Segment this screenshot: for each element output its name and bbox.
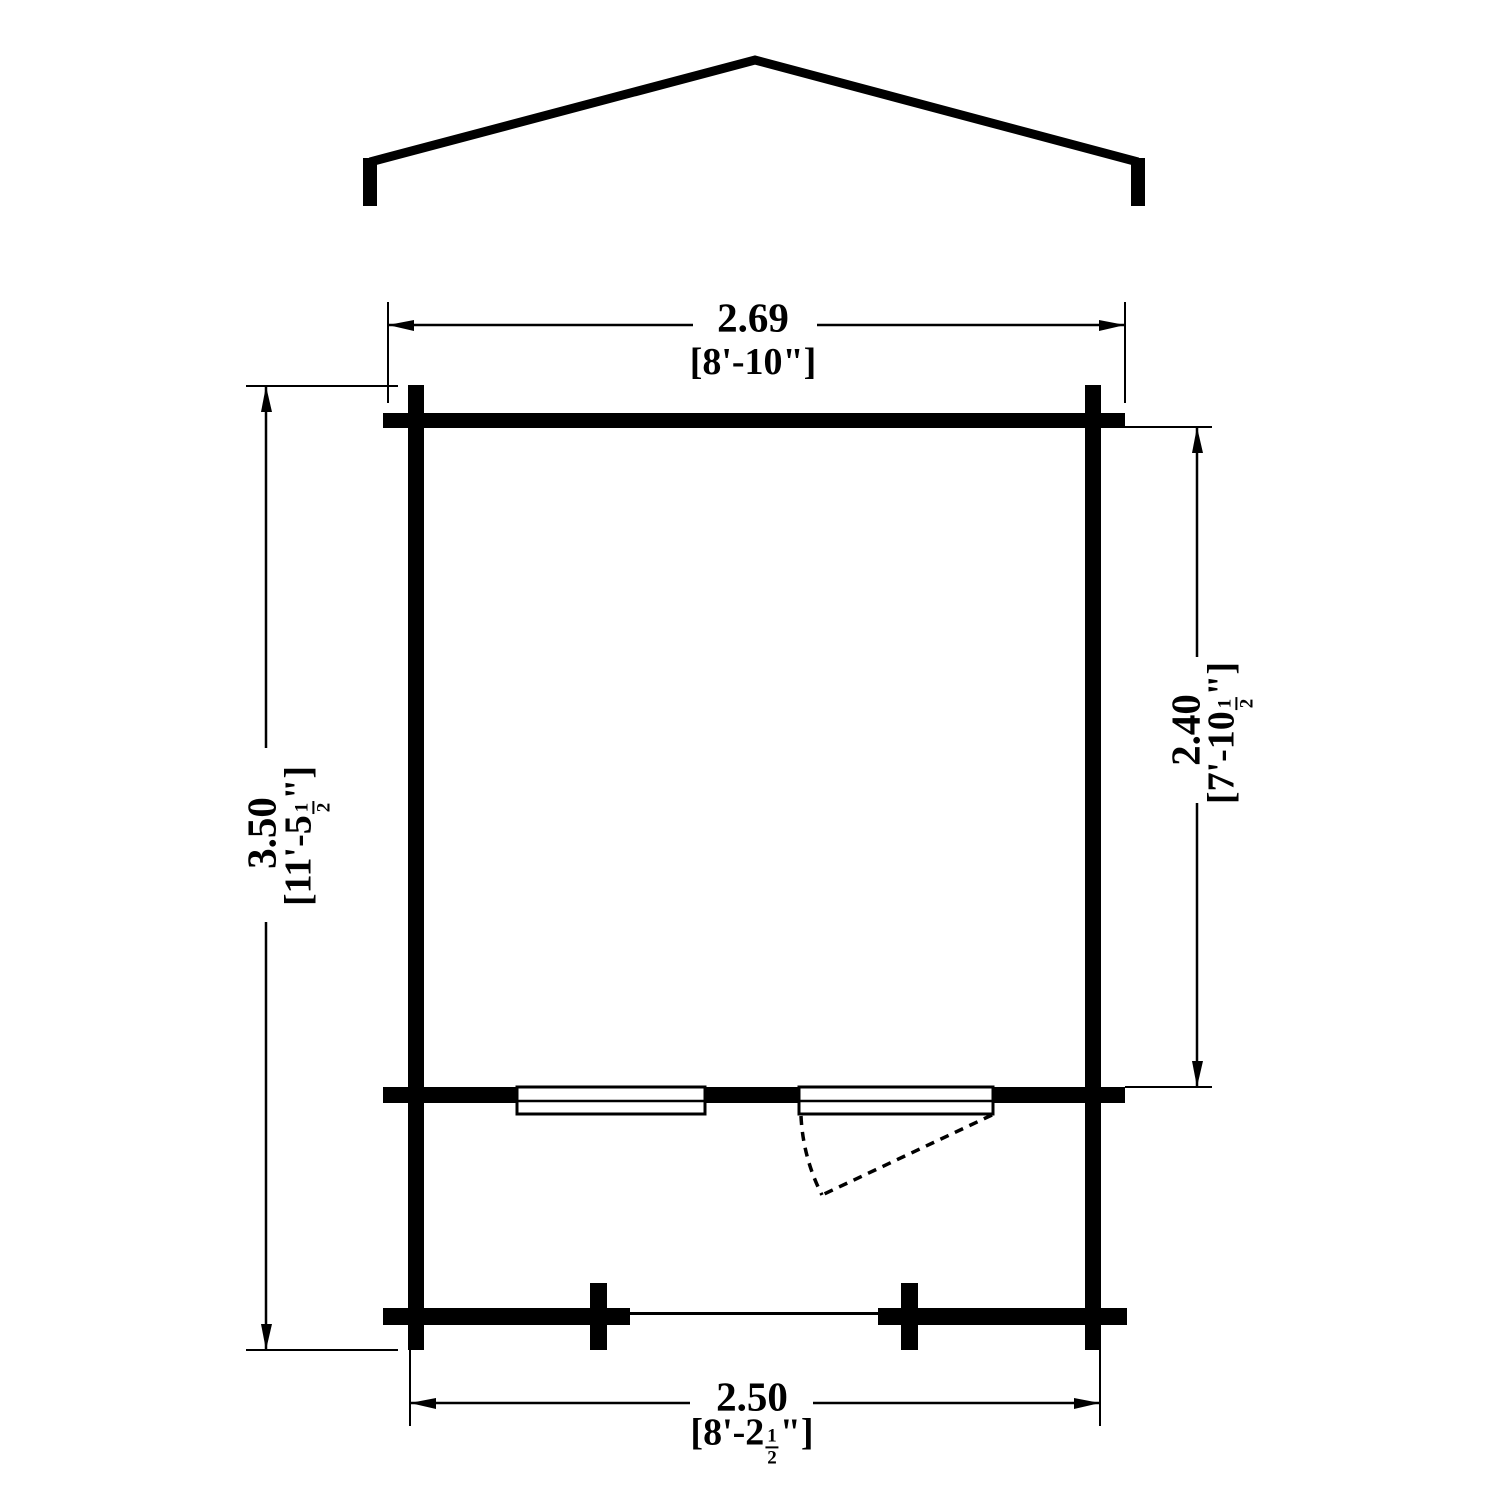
porch <box>383 1283 1127 1350</box>
dim-right-imperial-post: "] <box>1200 662 1242 696</box>
arrow-bottom-left <box>410 1398 436 1409</box>
arrow-left-top <box>261 386 272 412</box>
arrow-bottom-right <box>1074 1398 1100 1409</box>
dim-bottom-imperial: [8'-212"] <box>684 1413 819 1468</box>
dim-bottom-fraction: 12 <box>765 1427 779 1469</box>
dim-right-imperial: [7'-1012"] <box>1202 656 1257 810</box>
arrow-right-top <box>1192 427 1203 453</box>
walls <box>383 385 1125 1350</box>
wall-left <box>408 385 424 1350</box>
wall-front <box>383 1087 1125 1103</box>
gable-roof-profile <box>363 60 1145 206</box>
door-swing-arc <box>801 1116 822 1195</box>
dim-left-metric: 3.50 <box>242 791 283 875</box>
dim-bottom-imperial-post: "] <box>780 1411 814 1453</box>
dim-left-imperial-pre: [11'-5 <box>277 815 319 906</box>
dim-right-fraction: 12 <box>1216 697 1258 711</box>
dim-right-imperial-pre: [7'-10 <box>1200 711 1242 804</box>
dimension-arrows <box>261 320 1203 1409</box>
arrow-left-bottom <box>261 1324 272 1350</box>
porch-post-right <box>901 1283 918 1350</box>
roof-eave-end-left <box>363 158 377 206</box>
wall-right <box>1085 385 1101 1350</box>
floor-plan-canvas: 2.69 [8'-10"] 3.50 [11'-512"] 2.40 [7'-1… <box>0 0 1500 1500</box>
double-window <box>517 1087 705 1114</box>
roof-eave-end-right <box>1131 158 1145 206</box>
arrow-right-bottom <box>1192 1061 1203 1087</box>
dimension-lines <box>266 325 1197 1403</box>
dim-left-fraction: 12 <box>293 801 335 815</box>
dim-left-imperial: [11'-512"] <box>279 760 334 912</box>
porch-post-left <box>590 1283 607 1350</box>
arrow-top-right <box>1099 320 1125 331</box>
dim-top-imperial: [8'-10"] <box>684 343 823 381</box>
dim-left-imperial-post: "] <box>277 766 319 800</box>
wall-top <box>383 413 1125 428</box>
door-leaf-line <box>822 1115 992 1195</box>
dim-bottom-imperial-pre: [8'-2 <box>690 1411 764 1453</box>
arrow-top-left <box>388 320 414 331</box>
dim-top-metric: 2.69 <box>711 298 795 339</box>
floor-plan-drawing <box>0 0 1500 1500</box>
extension-lines <box>246 302 1212 1426</box>
door <box>799 1087 993 1195</box>
